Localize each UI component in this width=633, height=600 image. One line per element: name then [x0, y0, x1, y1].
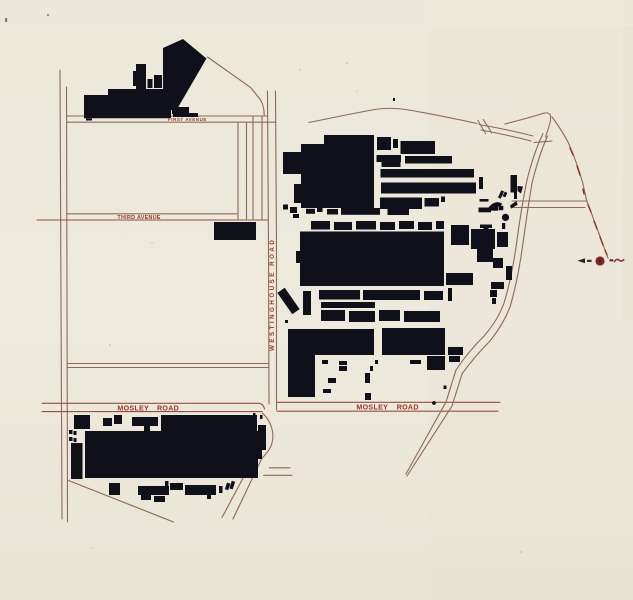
svg-text:FIRST AVENUE: FIRST AVENUE [168, 117, 207, 122]
svg-text:ROAD: ROAD [157, 405, 179, 413]
svg-text:ROAD: ROAD [397, 404, 419, 412]
svg-text:MOSLEY: MOSLEY [356, 404, 388, 412]
svg-text:WESTINGHOUSE ROAD: WESTINGHOUSE ROAD [269, 238, 276, 351]
svg-text:MOSLEY: MOSLEY [117, 405, 149, 413]
svg-text:THIRD AVENUE: THIRD AVENUE [117, 215, 161, 221]
